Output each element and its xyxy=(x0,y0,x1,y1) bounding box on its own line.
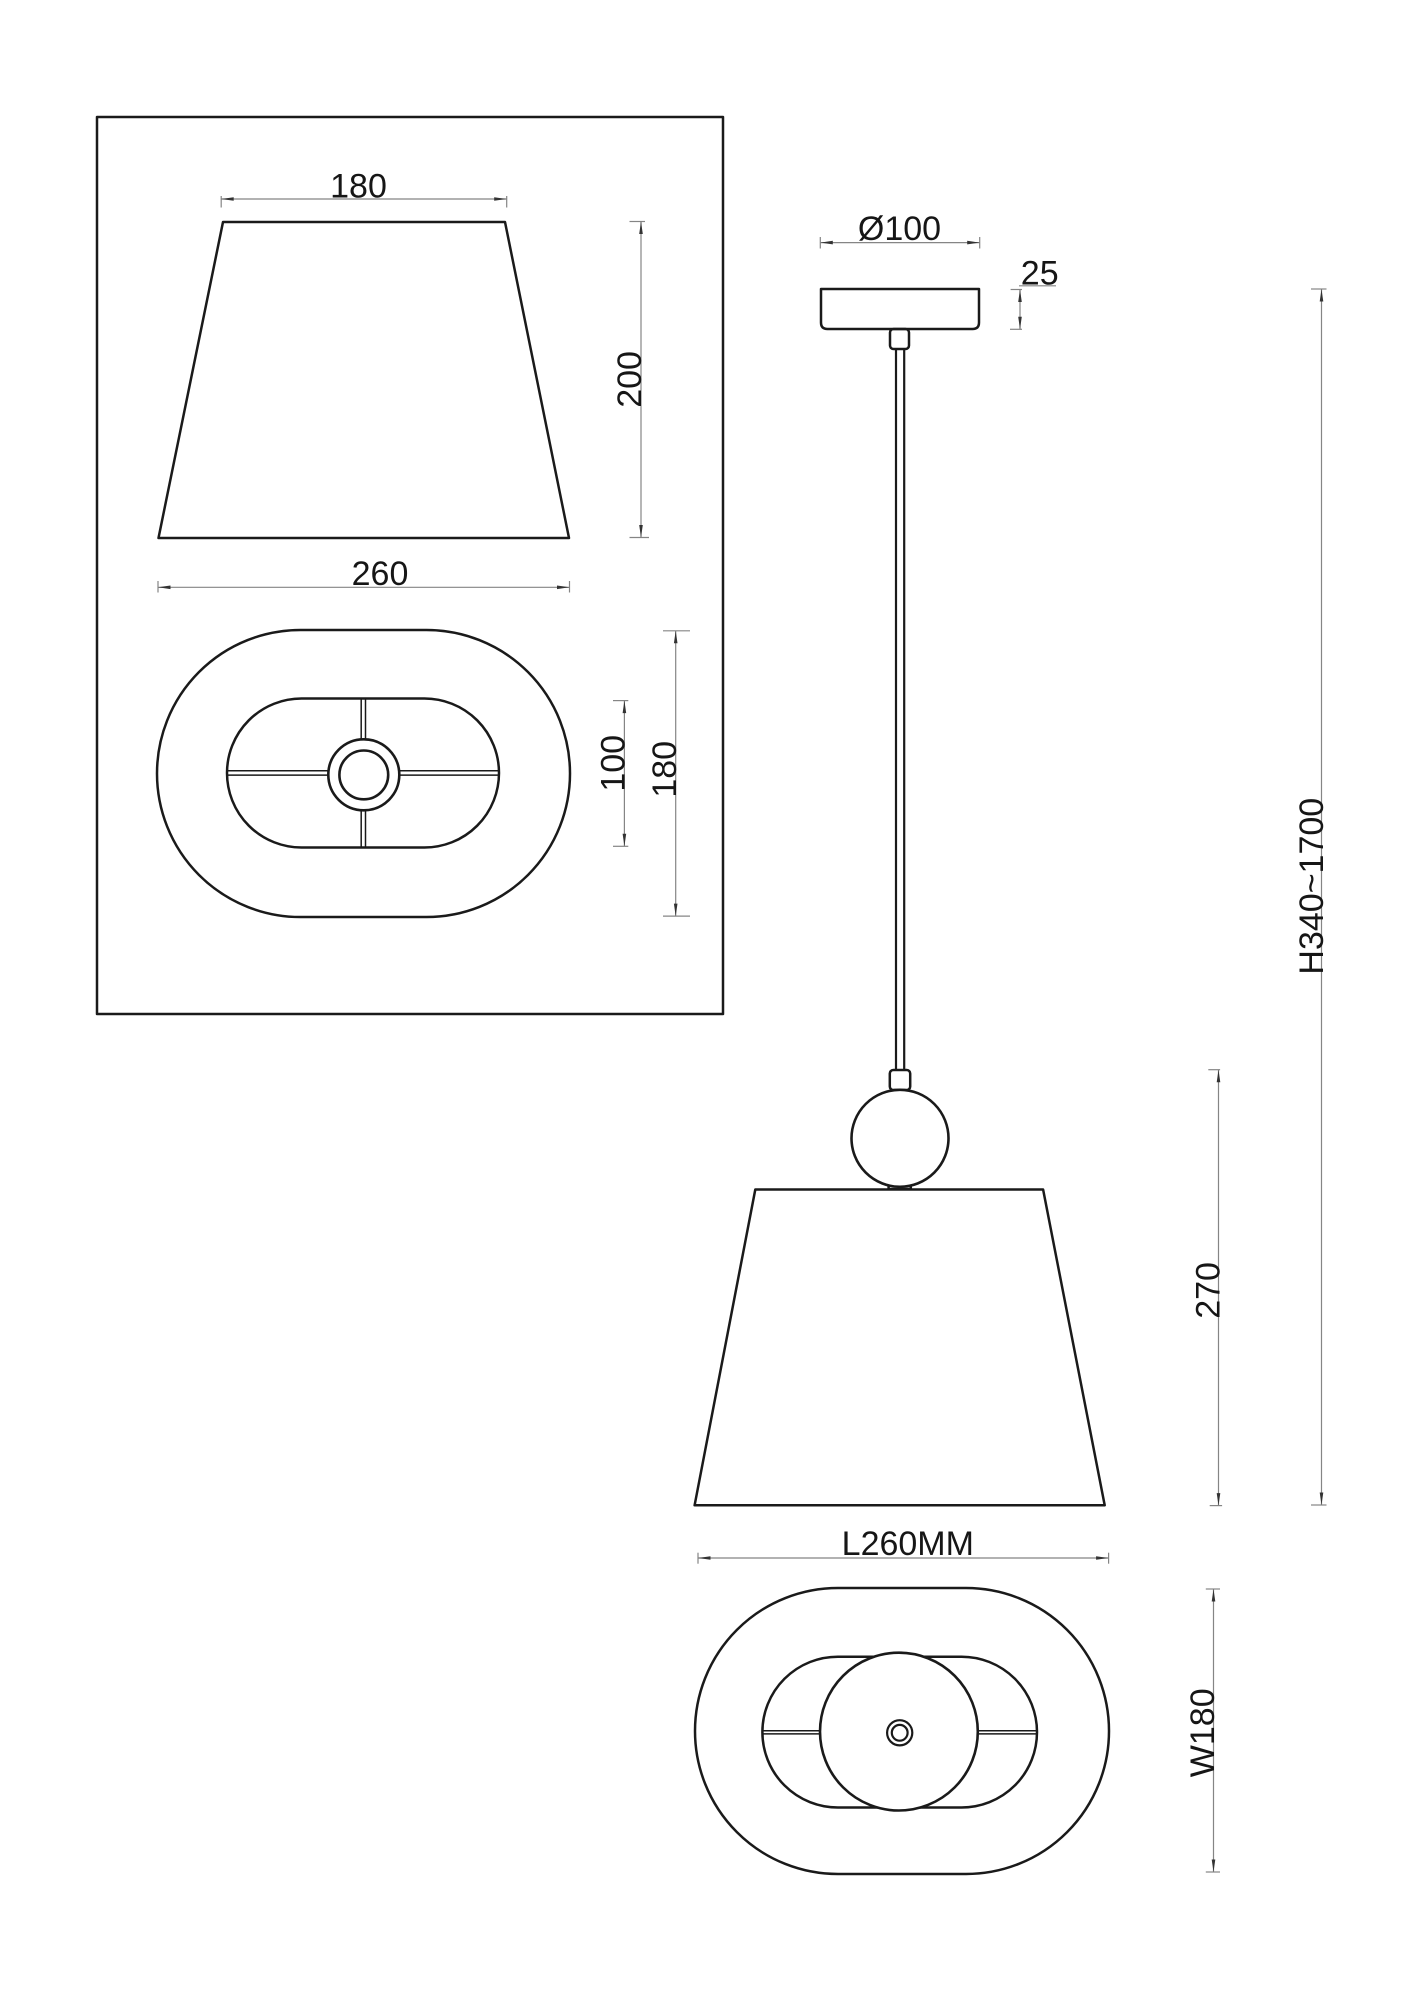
svg-text:270: 270 xyxy=(1190,1262,1228,1319)
svg-text:25: 25 xyxy=(1021,255,1059,293)
svg-text:260: 260 xyxy=(352,555,409,593)
svg-text:H340~1700: H340~1700 xyxy=(1293,798,1331,975)
svg-text:180: 180 xyxy=(646,741,684,798)
svg-text:W180: W180 xyxy=(1184,1688,1222,1777)
svg-text:100: 100 xyxy=(595,735,633,792)
svg-text:Ø100: Ø100 xyxy=(858,210,941,248)
svg-text:L260MM: L260MM xyxy=(842,1525,974,1563)
svg-text:200: 200 xyxy=(611,351,649,408)
svg-text:180: 180 xyxy=(330,168,387,206)
